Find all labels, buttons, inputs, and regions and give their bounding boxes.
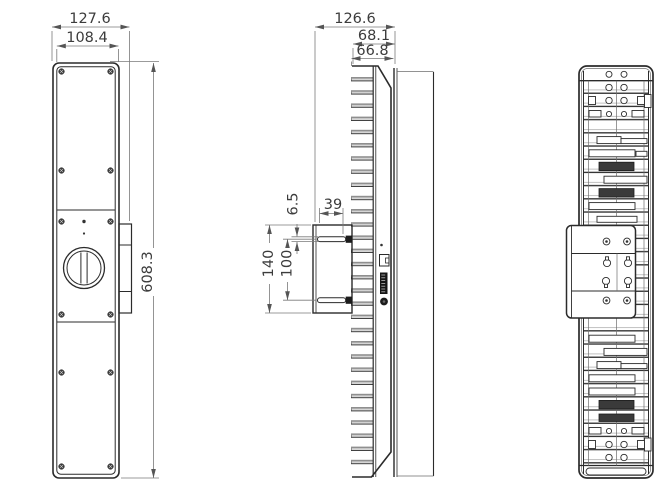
dim-front-outer-width: 127.6 [69,11,111,27]
dim-side-body-depth: 66.8 [356,43,388,59]
rear-mounting-plate [567,226,636,319]
rear-view [567,66,654,478]
pilot-hole [83,232,85,234]
screw-boss-icon [603,238,610,245]
technical-drawing: 127.6 108.4 608.3 [0,0,668,502]
terminal-block-icon [380,273,388,295]
dim-front-height: 608.3 [140,251,156,293]
screw-icon [59,69,65,75]
bracket-pin-head [346,236,352,243]
side-dimensions: 126.6 68.1 66.8 39 6.5 140 [261,11,395,313]
dim-pin-spacing: 100 [280,250,296,278]
dim-bracket-height: 140 [261,250,277,278]
screw-icon [59,312,65,318]
screw-icon [108,69,114,75]
screw-boss-icon [624,238,631,245]
screw-icon [108,219,114,225]
screw-icon [108,370,114,376]
dim-side-heatsink-depth: 68.1 [358,28,390,44]
dim-front-panel-width: 108.4 [66,30,108,46]
front-dimensions: 127.6 108.4 608.3 [52,11,159,478]
dim-pin-thickness: 6.5 [286,192,302,215]
screw-icon [59,464,65,470]
rear-top-cap [606,71,627,77]
bracket-pin-head [346,297,352,304]
rear-bottom-cap [586,468,646,475]
indicator-dot [380,244,383,247]
screw-icon [59,168,65,174]
screw-boss-icon [624,297,631,304]
screw-boss-icon [603,297,610,304]
mounting-bracket-side [313,225,352,313]
gland-knob [64,248,105,289]
screw-icon [108,464,114,470]
ethernet-port-icon [380,255,390,267]
push-button-icon [380,298,388,306]
screw-icon [108,312,114,318]
dim-bracket-depth: 39 [324,197,342,213]
screw-icon [59,219,65,225]
front-bezel-side [397,72,434,477]
screw-icon [59,370,65,376]
front-view: 127.6 108.4 608.3 [52,11,159,478]
pilot-hole [82,220,85,223]
heatsink-fins-side [351,77,373,471]
side-mount-bracket-front [119,224,132,313]
screw-icon [108,168,114,174]
dim-side-overall-depth: 126.6 [334,11,376,27]
side-view: 126.6 68.1 66.8 39 6.5 140 [261,11,434,477]
drawing-canvas: 127.6 108.4 608.3 [0,0,668,502]
